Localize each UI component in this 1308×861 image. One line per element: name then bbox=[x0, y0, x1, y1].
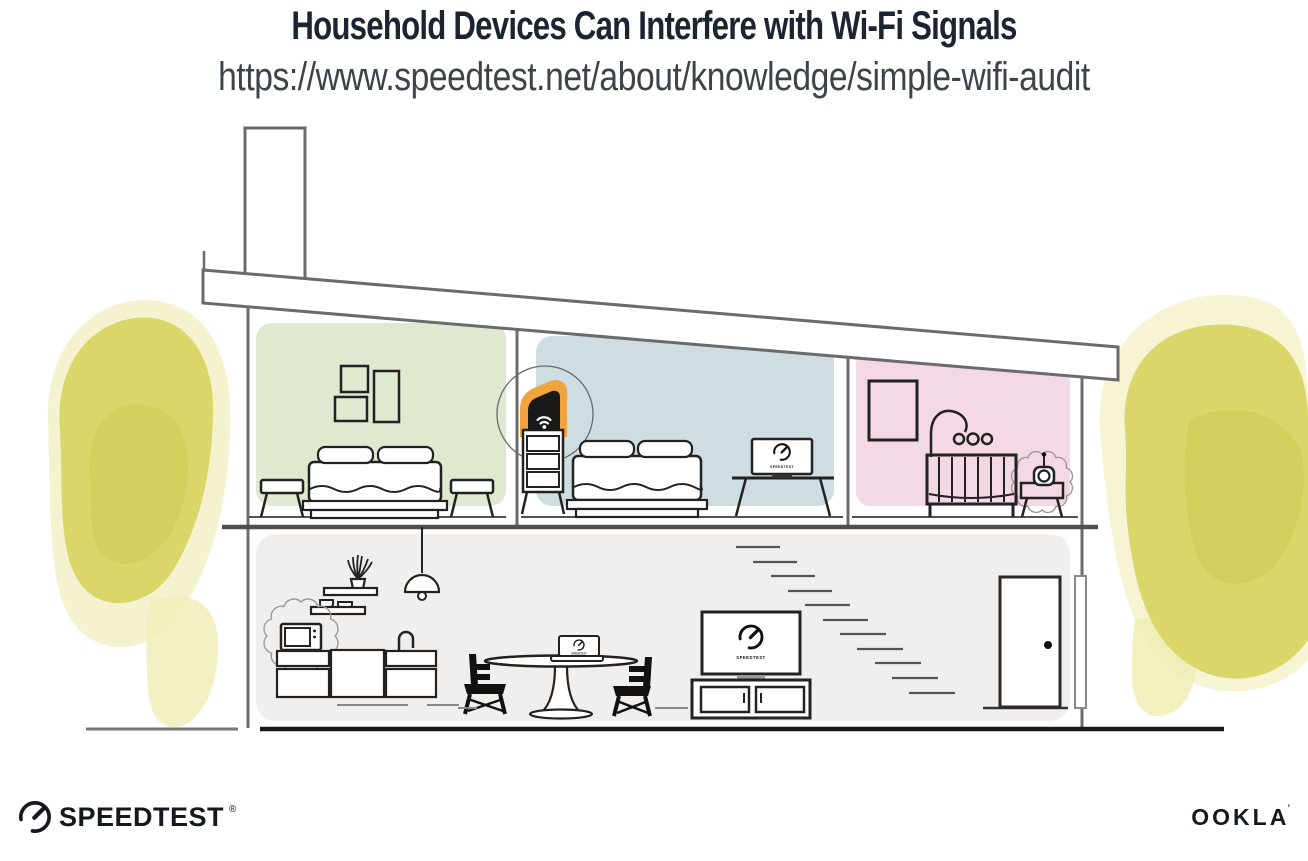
left-tree bbox=[48, 300, 231, 727]
dresser-drawer bbox=[527, 454, 559, 469]
right-tree bbox=[1100, 295, 1308, 716]
front-door bbox=[1000, 577, 1060, 707]
bed-pillow bbox=[378, 447, 433, 463]
microwave-button bbox=[313, 630, 316, 633]
counter-cabinet bbox=[386, 669, 436, 697]
bed-pillow bbox=[580, 441, 634, 457]
counter-cabinet bbox=[331, 650, 384, 697]
door-knob bbox=[1044, 641, 1052, 649]
bed-base bbox=[303, 501, 447, 510]
chair-slat bbox=[629, 666, 646, 672]
tv-stand bbox=[737, 675, 765, 679]
chair-slat bbox=[473, 664, 490, 670]
stool-seat bbox=[261, 480, 303, 493]
laptop-stand bbox=[772, 474, 792, 478]
laptop-screen-label: SPEEDTEST bbox=[770, 465, 794, 469]
monitor-antenna-tip bbox=[1042, 452, 1046, 456]
chair-slat bbox=[629, 676, 646, 682]
wall-shelf bbox=[324, 588, 377, 595]
counter-drawer bbox=[386, 651, 436, 666]
speedtest-wordmark: SPEEDTEST bbox=[59, 802, 224, 833]
speedtest-logo: SPEEDTEST ® bbox=[18, 800, 238, 834]
ookla-trademark-mark: ’ bbox=[1287, 802, 1290, 816]
ookla-wordmark: OOKLA bbox=[1191, 804, 1289, 830]
wall-shelf bbox=[311, 607, 365, 614]
bed-mattress bbox=[573, 456, 701, 500]
page: Household Devices Can Interfere with Wi-… bbox=[0, 0, 1308, 861]
tree-trunk-wash bbox=[146, 596, 218, 727]
bed-mattress bbox=[309, 462, 441, 502]
pendant-bulb bbox=[418, 592, 426, 600]
ookla-logo: OOKLA’ bbox=[1191, 804, 1292, 831]
counter-drawer bbox=[277, 651, 329, 666]
registered-trademark-mark: ® bbox=[229, 804, 236, 815]
speedtest-gauge-icon bbox=[18, 800, 52, 834]
chair-slat bbox=[473, 674, 490, 680]
counter-cabinet bbox=[277, 669, 329, 697]
chair-seat bbox=[464, 684, 506, 694]
laptop-screen-label: SPEEDTEST bbox=[571, 652, 587, 656]
tv-screen bbox=[702, 612, 800, 674]
table-base bbox=[530, 710, 592, 719]
house-illustration: SPEEDTEST bbox=[0, 0, 1308, 861]
microwave-button bbox=[313, 636, 316, 639]
living-area: SPEEDTEST bbox=[692, 612, 810, 718]
laptop-base bbox=[551, 656, 603, 661]
tv-screen-label: SPEEDTEST bbox=[736, 655, 765, 660]
bed-base bbox=[567, 500, 707, 509]
bed-pillow bbox=[318, 447, 373, 463]
downspout bbox=[1075, 576, 1086, 708]
bed-base bbox=[576, 509, 698, 517]
chair-seat bbox=[613, 686, 651, 696]
bed-base bbox=[311, 510, 438, 518]
stool-seat bbox=[451, 480, 493, 493]
chimney bbox=[245, 128, 305, 280]
dresser-drawer bbox=[527, 472, 559, 487]
dresser-drawer bbox=[527, 436, 559, 451]
dresser-leg bbox=[522, 492, 527, 514]
bed-pillow bbox=[638, 441, 692, 457]
